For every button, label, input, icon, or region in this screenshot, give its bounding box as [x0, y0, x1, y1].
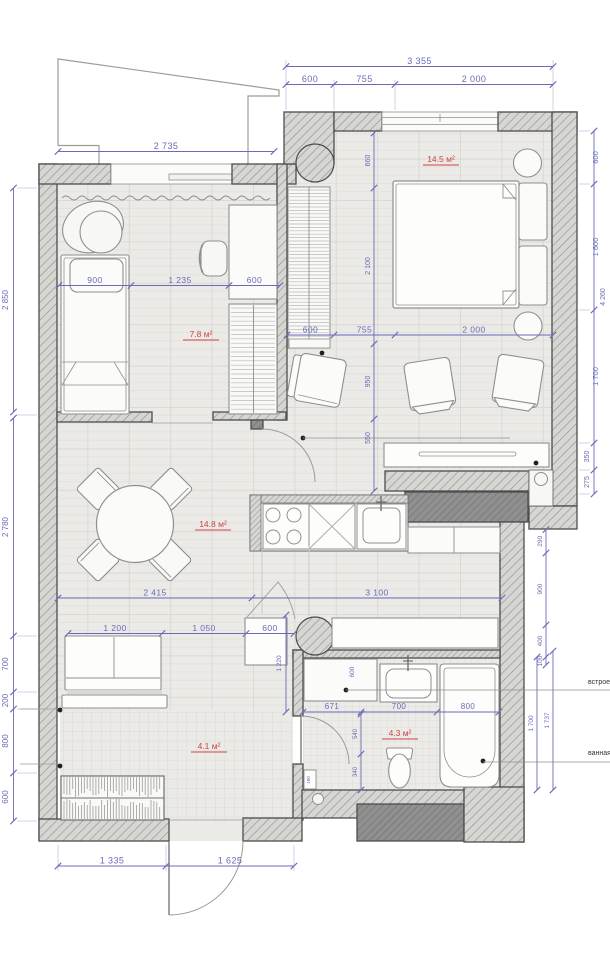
svg-text:2 780: 2 780: [1, 516, 10, 537]
svg-text:350: 350: [584, 451, 591, 463]
svg-text:600: 600: [349, 666, 356, 677]
svg-text:2 000: 2 000: [462, 325, 485, 335]
svg-text:400: 400: [537, 635, 544, 646]
svg-text:600: 600: [262, 623, 277, 633]
svg-text:3 355: 3 355: [407, 56, 432, 66]
svg-text:540: 540: [353, 728, 359, 739]
svg-text:290: 290: [537, 535, 544, 546]
svg-text:660: 660: [365, 155, 372, 167]
svg-text:900: 900: [537, 583, 544, 594]
svg-text:ванная: ванная: [588, 750, 610, 757]
svg-text:2 850: 2 850: [1, 289, 10, 310]
svg-text:1 600: 1 600: [591, 238, 600, 257]
svg-text:600: 600: [247, 275, 262, 285]
svg-text:2 735: 2 735: [154, 141, 179, 151]
svg-text:2 000: 2 000: [462, 74, 487, 84]
svg-text:встрое: встрое: [588, 679, 610, 686]
svg-text:950: 950: [365, 376, 372, 388]
svg-text:100: 100: [537, 655, 544, 666]
svg-text:1 625: 1 625: [218, 856, 243, 866]
svg-text:14.5 м²: 14.5 м²: [427, 154, 455, 164]
svg-text:700: 700: [1, 657, 10, 671]
svg-text:1 235: 1 235: [168, 275, 191, 285]
svg-text:600: 600: [591, 151, 600, 164]
svg-text:4.3 м²: 4.3 м²: [389, 728, 412, 738]
svg-text:600: 600: [1, 790, 10, 804]
svg-text:3 100: 3 100: [365, 588, 388, 598]
svg-text:1 335: 1 335: [100, 856, 125, 866]
svg-text:755: 755: [357, 325, 372, 335]
svg-text:800: 800: [1, 734, 10, 748]
svg-text:671: 671: [325, 702, 340, 711]
svg-text:550: 550: [365, 432, 372, 444]
svg-text:275: 275: [584, 476, 591, 488]
svg-text:800: 800: [461, 702, 476, 711]
svg-text:200: 200: [1, 693, 10, 707]
svg-text:2 415: 2 415: [143, 588, 166, 598]
svg-text:340: 340: [353, 766, 359, 777]
svg-text:1 700: 1 700: [591, 367, 600, 386]
svg-text:180: 180: [306, 776, 311, 784]
svg-text:2 100: 2 100: [365, 257, 372, 275]
svg-text:1 700: 1 700: [528, 715, 535, 732]
svg-text:600: 600: [302, 74, 318, 84]
svg-text:4 260: 4 260: [600, 288, 607, 306]
svg-text:14.8 м²: 14.8 м²: [199, 519, 227, 529]
svg-text:1 200: 1 200: [103, 623, 126, 633]
svg-text:4.1 м²: 4.1 м²: [198, 741, 221, 751]
svg-text:1 050: 1 050: [192, 623, 215, 633]
svg-text:600: 600: [303, 325, 318, 335]
svg-text:700: 700: [392, 702, 407, 711]
svg-text:7.8 м²: 7.8 м²: [190, 329, 213, 339]
svg-text:1 737: 1 737: [544, 712, 551, 729]
svg-text:900: 900: [87, 275, 102, 285]
svg-text:1 220: 1 220: [276, 655, 283, 672]
svg-text:755: 755: [356, 74, 372, 84]
